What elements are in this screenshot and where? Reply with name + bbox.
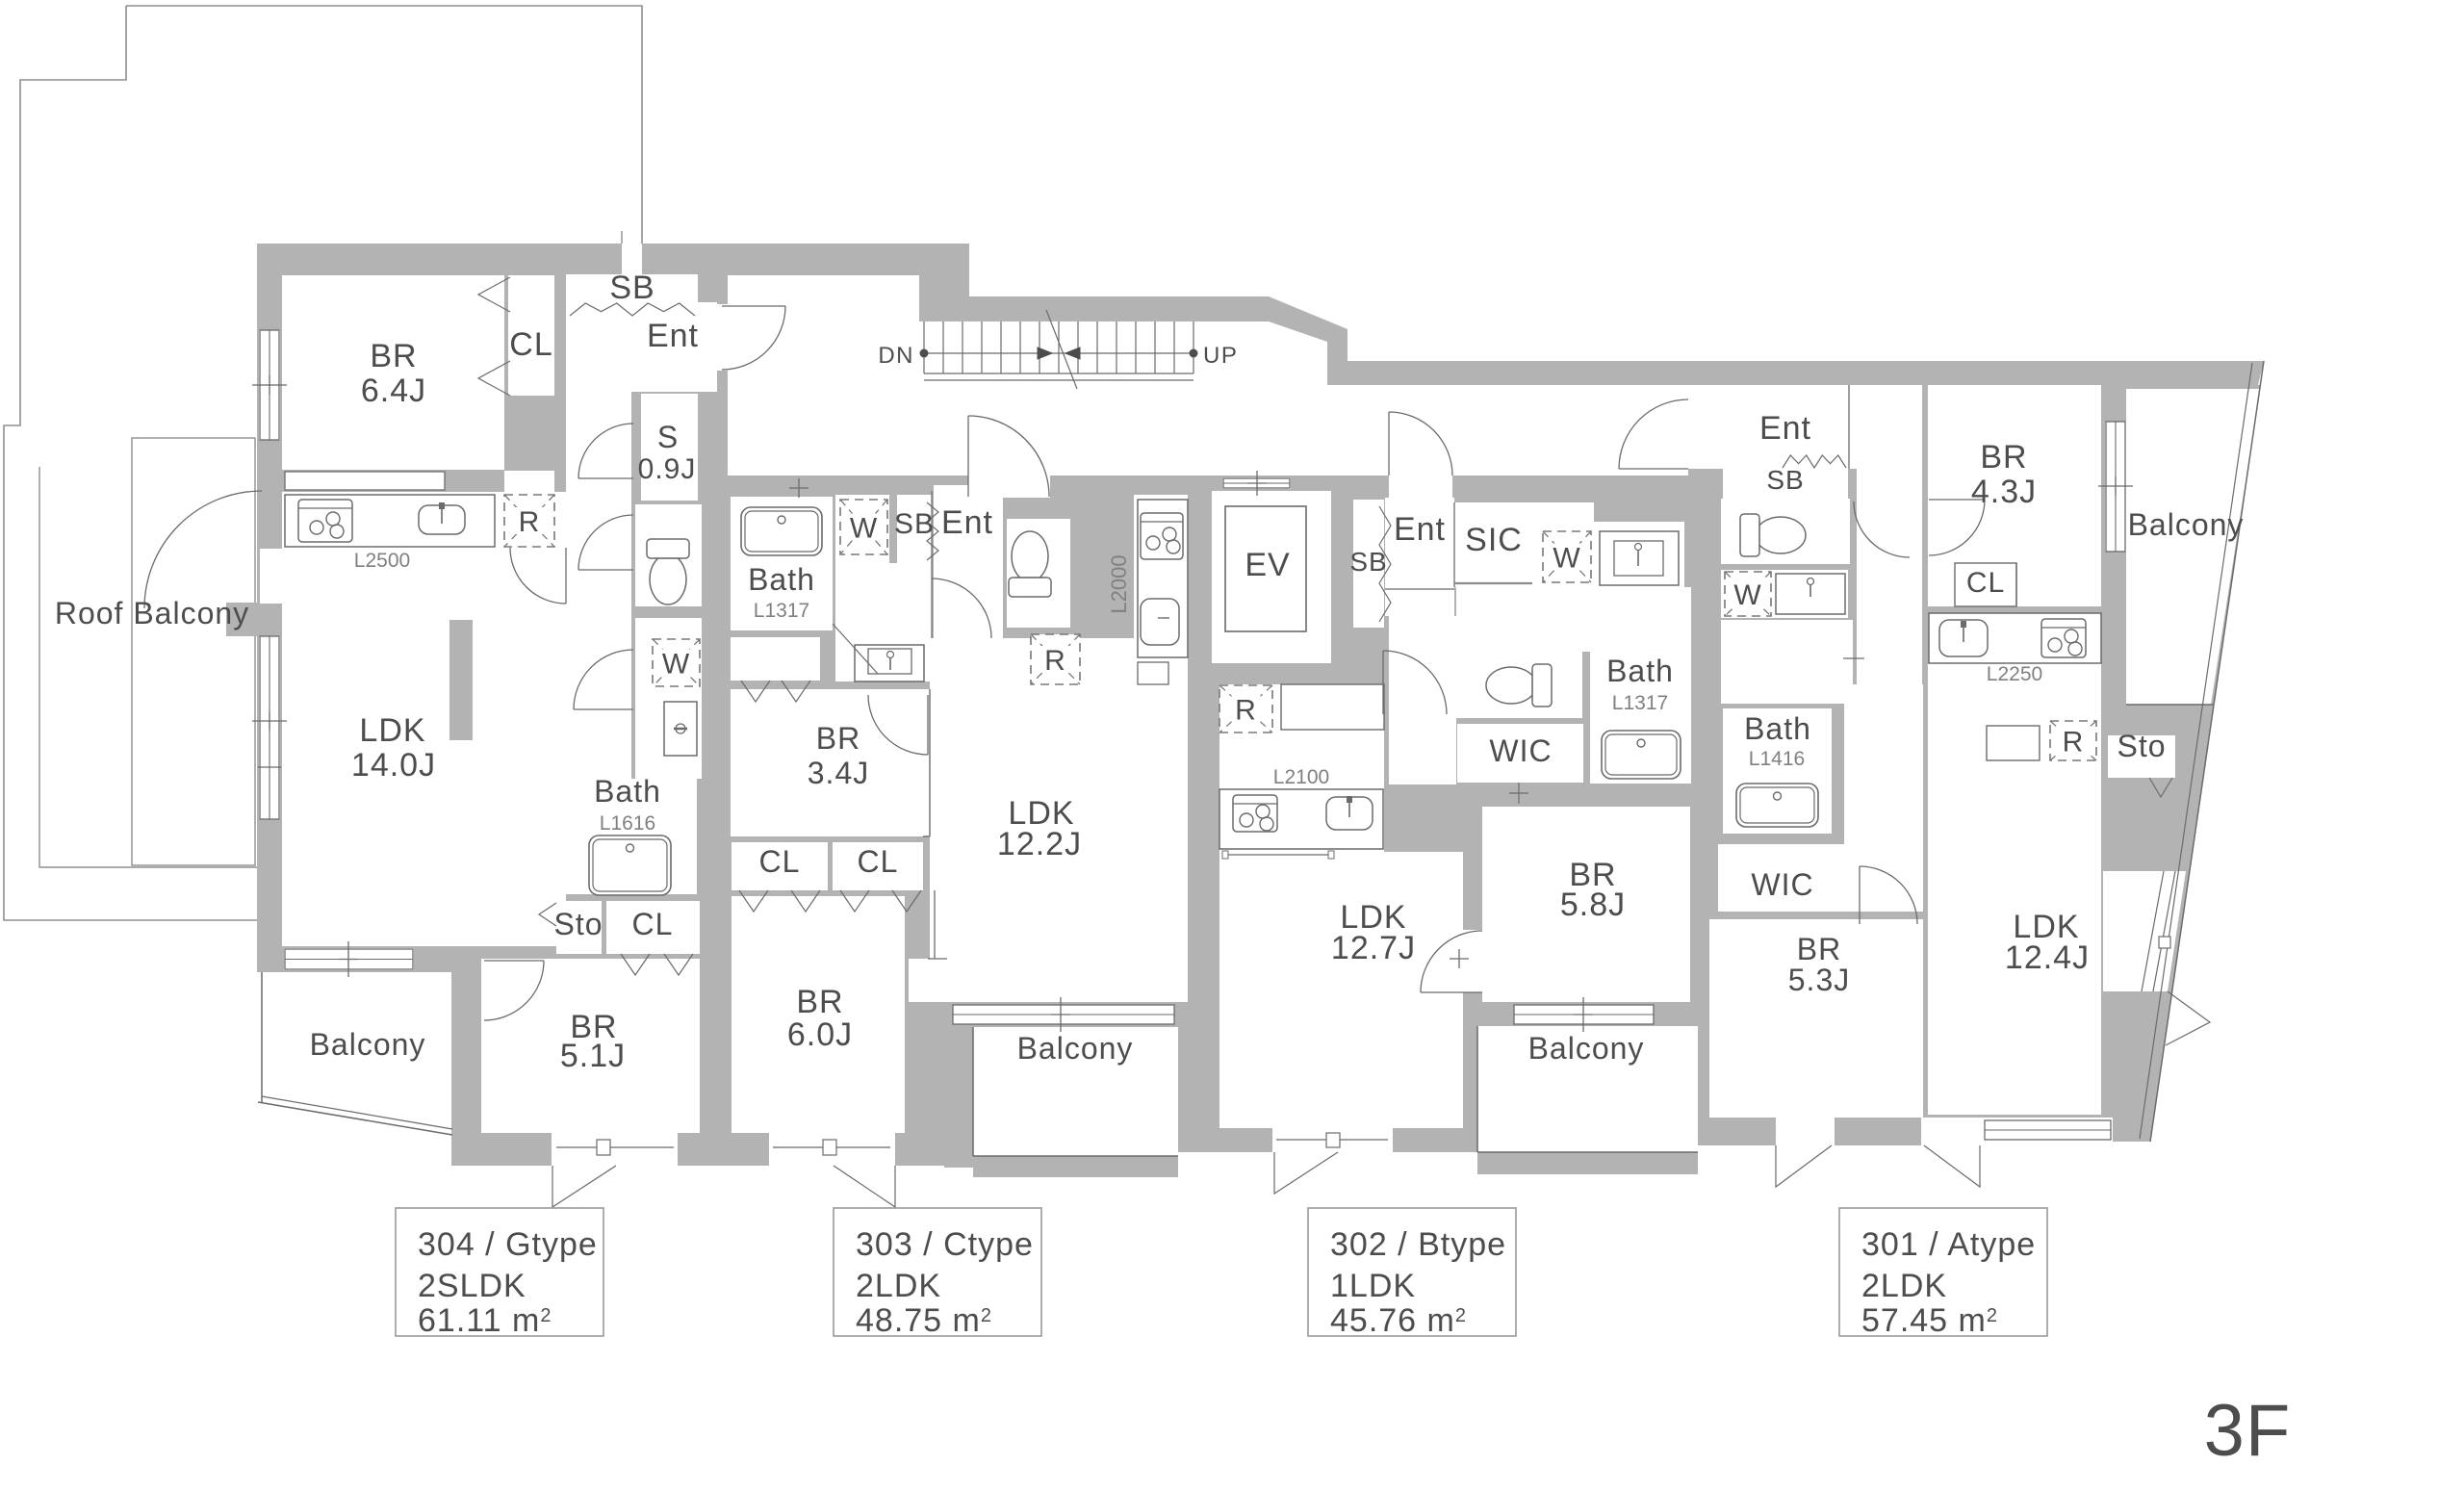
svg-text:SB: SB <box>894 508 935 540</box>
svg-text:Ent: Ent <box>941 504 993 541</box>
svg-text:Bath: Bath <box>594 774 661 809</box>
svg-text:SB: SB <box>1349 547 1387 577</box>
svg-text:L1416: L1416 <box>1749 748 1805 770</box>
svg-text:W: W <box>850 513 878 545</box>
svg-text:CL: CL <box>1966 567 2005 599</box>
svg-text:Balcony: Balcony <box>2128 507 2245 542</box>
svg-text:57.45 m2: 57.45 m2 <box>1861 1302 1998 1339</box>
svg-text:48.75 m2: 48.75 m2 <box>856 1302 992 1339</box>
svg-text:Balcony: Balcony <box>1528 1031 1645 1066</box>
svg-text:CL: CL <box>858 844 899 879</box>
svg-text:4.3J: 4.3J <box>1971 474 2037 510</box>
svg-text:L1317: L1317 <box>1612 692 1668 714</box>
svg-text:5.8J: 5.8J <box>1560 887 1626 923</box>
svg-text:302 / Btype: 302 / Btype <box>1330 1226 1506 1263</box>
svg-text:BR: BR <box>1797 932 1841 966</box>
svg-text:3F: 3F <box>2204 1390 2292 1472</box>
svg-text:Sto: Sto <box>553 907 603 941</box>
svg-text:304 / Gtype: 304 / Gtype <box>418 1226 598 1263</box>
svg-text:R: R <box>519 506 541 538</box>
svg-text:1LDK: 1LDK <box>1330 1268 1416 1304</box>
svg-text:6.4J: 6.4J <box>361 373 426 409</box>
svg-text:45.76 m2: 45.76 m2 <box>1330 1302 1467 1339</box>
svg-text:61.11 m2: 61.11 m2 <box>418 1302 552 1339</box>
svg-text:BR: BR <box>796 984 843 1020</box>
svg-text:301 / Atype: 301 / Atype <box>1861 1226 2036 1263</box>
svg-text:Ent: Ent <box>1759 410 1811 447</box>
svg-text:CL: CL <box>632 907 674 941</box>
svg-text:12.7J: 12.7J <box>1331 930 1416 966</box>
svg-text:UP: UP <box>1203 343 1238 369</box>
svg-text:Roof Balcony: Roof Balcony <box>55 596 249 630</box>
svg-text:12.4J: 12.4J <box>2005 939 2090 976</box>
svg-text:DN: DN <box>878 343 914 369</box>
svg-text:CL: CL <box>509 326 552 363</box>
svg-text:2LDK: 2LDK <box>1861 1268 1947 1304</box>
svg-text:Bath: Bath <box>748 562 815 597</box>
svg-text:BR: BR <box>1980 439 2027 476</box>
svg-text:2LDK: 2LDK <box>856 1268 941 1304</box>
svg-text:Balcony: Balcony <box>310 1027 426 1062</box>
svg-text:BR: BR <box>816 721 860 756</box>
svg-text:2SLDK: 2SLDK <box>418 1268 526 1304</box>
svg-text:Bath: Bath <box>1606 654 1674 688</box>
svg-text:W: W <box>1733 579 1761 611</box>
svg-text:L2000: L2000 <box>1107 554 1131 613</box>
svg-text:0.9J: 0.9J <box>638 453 697 485</box>
svg-text:12.2J: 12.2J <box>997 826 1082 862</box>
svg-text:3.4J: 3.4J <box>808 756 869 790</box>
svg-text:5.3J: 5.3J <box>1788 963 1850 997</box>
svg-text:Ent: Ent <box>647 318 699 354</box>
svg-text:303 / Ctype: 303 / Ctype <box>856 1226 1034 1263</box>
svg-text:Bath: Bath <box>1744 711 1811 746</box>
svg-text:R: R <box>2063 727 2085 758</box>
svg-text:L2100: L2100 <box>1273 766 1329 788</box>
svg-text:W: W <box>1553 543 1580 575</box>
svg-text:SIC: SIC <box>1465 522 1523 558</box>
svg-text:SB: SB <box>1766 465 1804 495</box>
svg-text:Sto: Sto <box>2117 729 2166 763</box>
svg-text:WIC: WIC <box>1489 733 1552 768</box>
svg-text:Balcony: Balcony <box>1017 1031 1134 1066</box>
svg-text:R: R <box>1044 645 1066 677</box>
svg-text:S: S <box>657 420 679 454</box>
svg-text:L2250: L2250 <box>1987 663 2042 685</box>
svg-text:6.0J: 6.0J <box>787 1016 853 1053</box>
svg-text:W: W <box>662 649 690 681</box>
svg-text:L2500: L2500 <box>354 550 410 572</box>
svg-text:R: R <box>1235 695 1257 727</box>
svg-text:WIC: WIC <box>1751 867 1813 902</box>
svg-text:5.1J: 5.1J <box>560 1038 626 1074</box>
svg-text:L1317: L1317 <box>754 600 809 622</box>
svg-text:L1616: L1616 <box>600 812 655 835</box>
svg-text:LDK: LDK <box>359 712 425 749</box>
svg-text:EV: EV <box>1245 547 1290 583</box>
svg-text:BR: BR <box>370 338 417 374</box>
svg-text:14.0J: 14.0J <box>351 747 436 784</box>
svg-text:CL: CL <box>759 844 801 879</box>
svg-text:Ent: Ent <box>1394 511 1446 548</box>
svg-text:SB: SB <box>609 270 654 306</box>
